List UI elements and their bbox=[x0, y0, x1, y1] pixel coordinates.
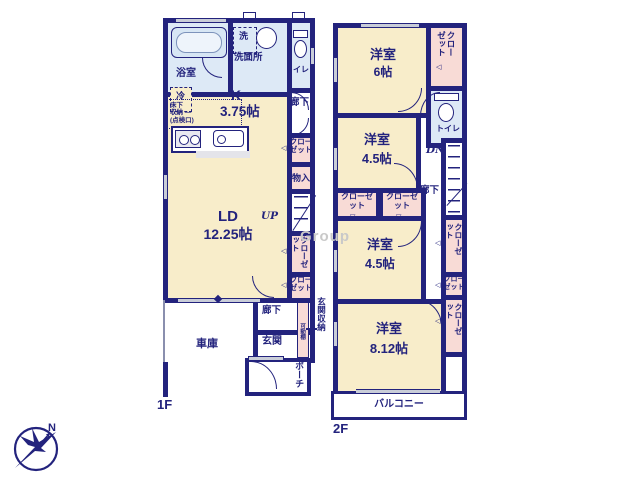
vent-icon bbox=[292, 12, 305, 19]
shelf-label: 可動棚 bbox=[299, 323, 305, 357]
door-swing-mark-icon: ◁ bbox=[281, 145, 286, 152]
washroom-label: 洗面所 bbox=[234, 53, 263, 64]
window-ld-left bbox=[163, 175, 168, 199]
window-room6-left bbox=[333, 58, 338, 82]
garage-open-wall bbox=[163, 300, 165, 364]
living-size-label: 12.25帖 bbox=[192, 227, 264, 243]
garage-wall bbox=[163, 362, 168, 397]
underfloor-line: 収納 ― bbox=[170, 109, 194, 116]
toilet-tank-icon bbox=[293, 30, 308, 38]
door-swing-mark-icon: ◁ bbox=[281, 248, 286, 255]
bathtub-icon bbox=[171, 27, 227, 58]
closet-top-label: クローゼット bbox=[436, 31, 455, 61]
room812-label: 洋室 bbox=[361, 322, 417, 337]
hall-lower-label: 廊下 bbox=[262, 306, 281, 317]
room6-label: 洋室 bbox=[355, 48, 411, 63]
storage-label: 物入 bbox=[292, 173, 310, 183]
toilet-bowl-icon bbox=[294, 40, 307, 58]
door-swing-mark-icon: ◁ bbox=[435, 282, 440, 289]
door-swing-mark-icon: ◁ bbox=[436, 64, 441, 71]
room812-size-label: 8.12帖 bbox=[355, 342, 423, 357]
door-swing-mark-icon: ◁ bbox=[435, 240, 440, 247]
watermark: Group bbox=[300, 228, 350, 245]
garage-label: 車庫 bbox=[196, 338, 218, 350]
stairs-up-label: UP bbox=[261, 211, 278, 223]
toilet-bowl-icon bbox=[438, 103, 454, 122]
outer-wall-2f bbox=[462, 23, 467, 393]
door-swing-mark-icon: ▽ bbox=[350, 214, 355, 221]
balcony-label: バルコニー bbox=[356, 399, 442, 410]
floor-plan-canvas: 浴室 洗 洗面所 トイレ 廊下 冷 K 3.75帖 床下 収納 ― (点検口) bbox=[0, 0, 640, 480]
closet-r3-label: クローゼット bbox=[444, 303, 462, 337]
stove-icon bbox=[175, 130, 201, 148]
porch-label: ポーチ bbox=[294, 361, 304, 393]
window-room45b-left bbox=[333, 250, 338, 272]
vent-icon bbox=[243, 12, 256, 19]
balcony-sliding-door bbox=[356, 389, 440, 394]
room45a-label: 洋室 bbox=[349, 133, 405, 148]
toilet-1f-label: トイレ bbox=[285, 66, 309, 75]
room45b-size-label: 4.5帖 bbox=[352, 257, 408, 271]
door-swing-mark-icon: ◁ bbox=[281, 282, 286, 289]
room6-size-label: 6帖 bbox=[360, 66, 406, 79]
living-label: LD bbox=[203, 209, 253, 226]
sink-icon bbox=[256, 27, 277, 49]
counter-front bbox=[196, 151, 250, 158]
compass-icon: N bbox=[8, 416, 68, 476]
closet-m1-label: クローゼット bbox=[339, 193, 375, 211]
underfloor-line: (点検口) bbox=[170, 117, 194, 124]
door-swing-mark-icon: ◁ bbox=[435, 318, 440, 325]
closet-r1-label: クローゼット bbox=[444, 223, 462, 257]
window-room45a-left bbox=[333, 148, 338, 170]
washer-label: 洗 bbox=[239, 31, 248, 41]
floor2-label: 2F bbox=[333, 422, 348, 437]
entrance-storage-label: 玄関収納 bbox=[316, 297, 326, 359]
floor1-label: 1F bbox=[157, 398, 172, 413]
closet-m2-label: クローゼット bbox=[384, 193, 420, 211]
toilet-2f-label: トイレ bbox=[436, 125, 460, 134]
window-room812-left bbox=[333, 322, 338, 346]
compass-north-label: N bbox=[48, 422, 56, 434]
bath-label: 浴室 bbox=[176, 68, 196, 79]
door-swing-mark-icon: ▽ bbox=[396, 214, 401, 221]
window-bath bbox=[176, 18, 226, 23]
outer-wall-1f bbox=[310, 18, 315, 363]
entrance-label: 玄関 bbox=[262, 336, 282, 347]
window-toilet-right bbox=[310, 48, 315, 64]
window-room6-top bbox=[361, 23, 419, 28]
kitchen-sink-icon bbox=[213, 130, 244, 147]
